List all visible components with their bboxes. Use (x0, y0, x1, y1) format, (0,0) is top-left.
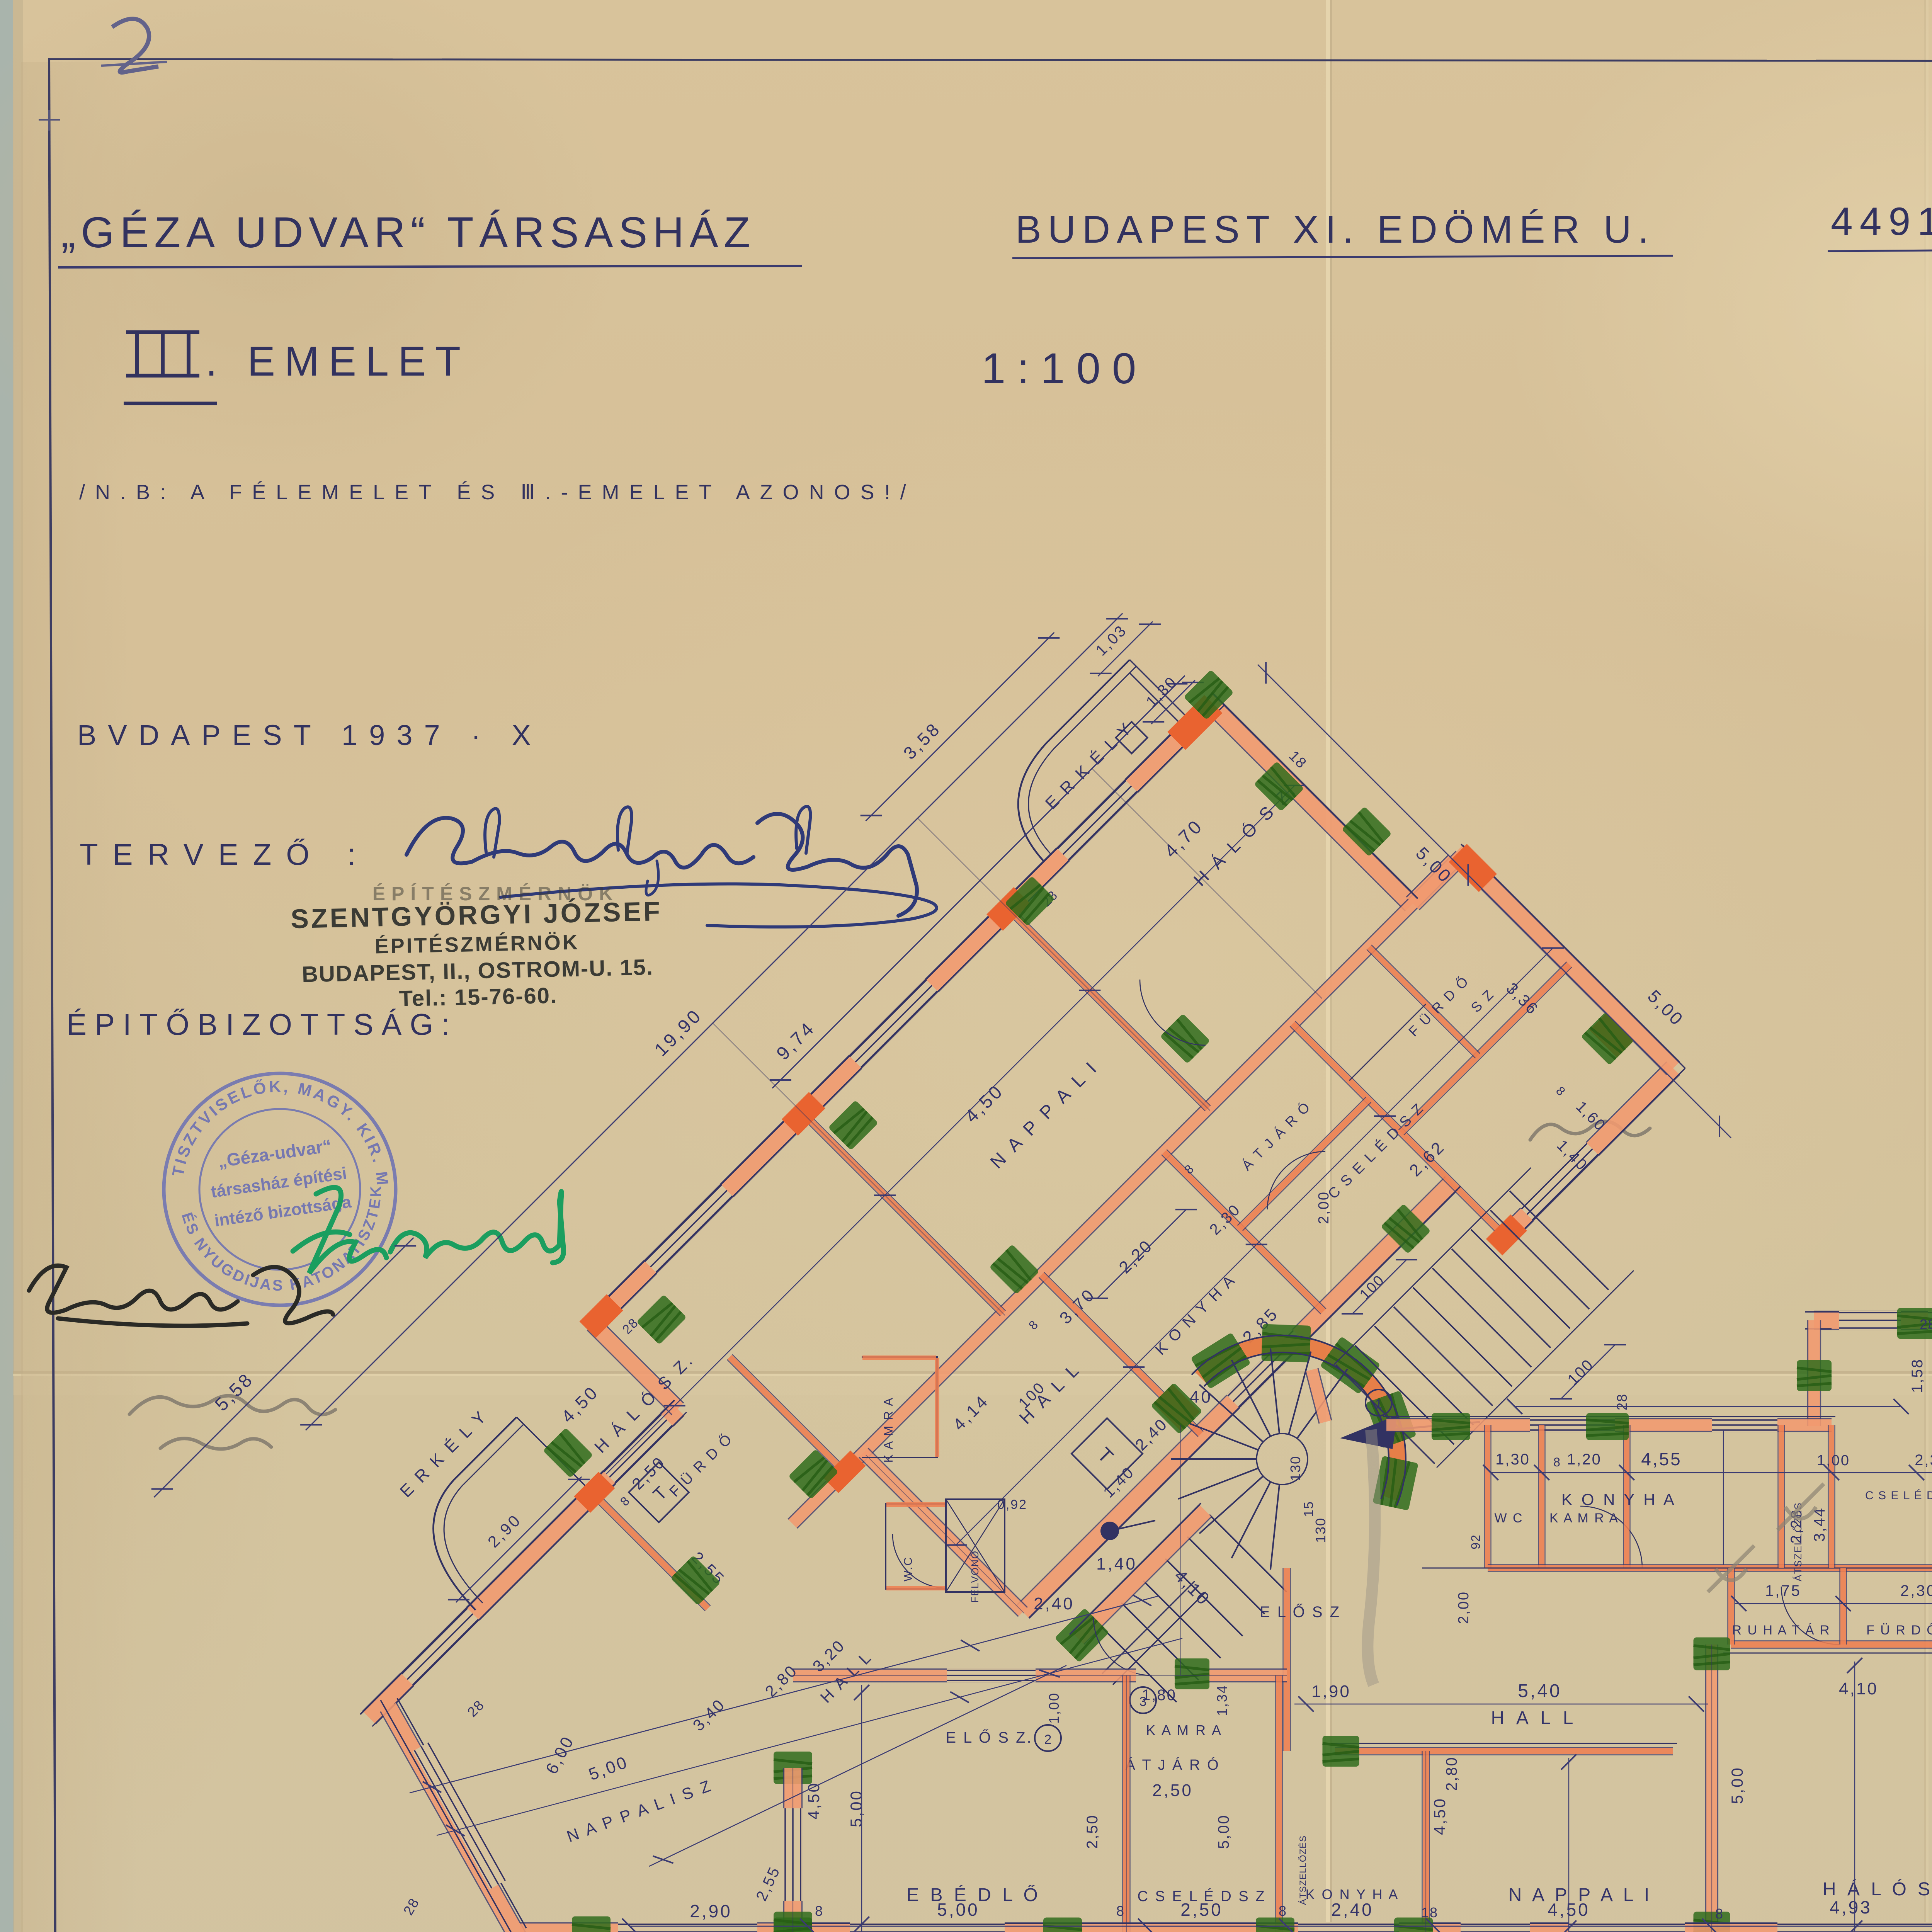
svg-text:4,93: 4,93 (1830, 1897, 1872, 1917)
svg-text:1,00: 1,00 (1817, 1452, 1850, 1469)
svg-text:2,50: 2,50 (1084, 1814, 1101, 1849)
svg-text:ÉPITŐBIZOTTSÁG:: ÉPITŐBIZOTTSÁG: (66, 1007, 458, 1041)
svg-text:F Ü R D Ő S Z: F Ü R D Ő S Z (1866, 1623, 1932, 1638)
svg-text:1,58: 1,58 (1909, 1358, 1926, 1393)
svg-text:FELVONÓ: FELVONÓ (969, 1550, 981, 1603)
svg-text:15: 15 (1301, 1501, 1316, 1517)
svg-text:8: 8 (1553, 1455, 1561, 1469)
svg-text:K A M R A: K A M R A (881, 1396, 895, 1463)
svg-text:2,50: 2,50 (1180, 1900, 1223, 1920)
svg-text:1,34: 1,34 (1214, 1684, 1230, 1716)
svg-text:„GÉZA UDVAR“ TÁRSASHÁZ: „GÉZA UDVAR“ TÁRSASHÁZ (61, 208, 755, 257)
svg-text:130: 130 (1313, 1517, 1328, 1543)
svg-text:5,40: 5,40 (1518, 1681, 1561, 1701)
svg-text:1,30: 1,30 (1495, 1451, 1530, 1468)
svg-text:4,10: 4,10 (1839, 1679, 1878, 1698)
svg-text:1,20: 1,20 (1567, 1451, 1602, 1468)
svg-text:92: 92 (1469, 1534, 1483, 1549)
svg-text:E L Ő S Z.: E L Ő S Z. (946, 1729, 1032, 1746)
svg-text:5,00: 5,00 (847, 1789, 865, 1827)
svg-text:8: 8 (1279, 1903, 1287, 1919)
svg-text:BVDAPEST 1937 · X: BVDAPEST 1937 · X (77, 719, 543, 751)
svg-text:K O N Y H A: K O N Y H A (1561, 1490, 1677, 1509)
svg-text:ÁTSZELLŐZÉS: ÁTSZELLŐZÉS (1298, 1835, 1308, 1905)
svg-text:8: 8 (1715, 1906, 1724, 1922)
svg-text:R U H A T Á R: R U H A T Á R (1732, 1623, 1830, 1638)
svg-text:1,90: 1,90 (1311, 1682, 1351, 1701)
svg-text:Á T J Á R Ó: Á T J Á R Ó (1125, 1757, 1220, 1773)
svg-text:4,55: 4,55 (1641, 1449, 1682, 1469)
svg-text:2,00: 2,00 (1456, 1591, 1472, 1624)
svg-text:W.C: W.C (902, 1556, 915, 1582)
svg-text:1,75: 1,75 (1765, 1582, 1801, 1599)
svg-text:2,30: 2,30 (1900, 1582, 1932, 1599)
svg-text:K A M R A: K A M R A (1146, 1722, 1223, 1738)
svg-text:2,40: 2,40 (1034, 1594, 1075, 1613)
svg-text:8: 8 (815, 1903, 823, 1919)
svg-text:4,50: 4,50 (1430, 1797, 1449, 1835)
svg-text:1,80: 1,80 (1142, 1687, 1177, 1704)
svg-text:5,00: 5,00 (1728, 1766, 1746, 1804)
svg-text:H A L L: H A L L (1491, 1708, 1577, 1728)
svg-text:2,80: 2,80 (1443, 1756, 1460, 1791)
svg-text:TERVEZŐ :: TERVEZŐ : (80, 837, 370, 871)
svg-text:2,90: 2,90 (690, 1901, 732, 1921)
svg-text:18: 18 (1421, 1905, 1438, 1920)
svg-text:BUDAPEST XI. EDÖMÉR U.: BUDAPEST XI. EDÖMÉR U. (1015, 208, 1655, 251)
svg-text:130: 130 (1287, 1456, 1303, 1481)
svg-text:2,00: 2,00 (1316, 1191, 1332, 1224)
svg-text:2: 2 (1044, 1732, 1052, 1747)
svg-text:ÉPITÉSZMÉRNÖK: ÉPITÉSZMÉRNÖK (374, 930, 580, 958)
svg-text:1,40: 1,40 (1096, 1554, 1137, 1573)
svg-text:4491/9 HRSZ.: 4491/9 HRSZ. (1831, 199, 1932, 243)
svg-text:5,00: 5,00 (1215, 1814, 1232, 1849)
svg-text:W C: W C (1494, 1511, 1523, 1526)
svg-text:28: 28 (1614, 1393, 1630, 1410)
svg-text:28: 28 (1920, 1316, 1932, 1332)
svg-text:0,92: 0,92 (997, 1497, 1027, 1512)
svg-text:1,00: 1,00 (1046, 1692, 1062, 1724)
svg-text:1: 1 (1375, 1397, 1383, 1412)
svg-text:2,40: 2,40 (1331, 1900, 1374, 1920)
svg-text:5,00: 5,00 (937, 1900, 980, 1920)
svg-text:K A M R A: K A M R A (1549, 1511, 1619, 1526)
svg-text:Tel.: 15-76-60.: Tel.: 15-76-60. (399, 983, 558, 1012)
svg-text:8: 8 (1116, 1903, 1125, 1919)
svg-text:2,30: 2,30 (1915, 1452, 1932, 1469)
svg-text:1:100: 1:100 (981, 344, 1148, 393)
svg-text:ÉPÍTÉSZMÉRNÖK: ÉPÍTÉSZMÉRNÖK (372, 883, 619, 905)
svg-text:H Á L Ó S Z.: H Á L Ó S Z. (1823, 1879, 1932, 1900)
svg-text:2,50: 2,50 (1152, 1781, 1193, 1800)
svg-text:E L Ő S Z: E L Ő S Z (1260, 1603, 1341, 1621)
svg-text:. EMELET: . EMELET (206, 338, 470, 384)
svg-text:/N.B: A FÉLEMELET ÉS Ⅲ.-EMELET: /N.B: A FÉLEMELET ÉS Ⅲ.-EMELET AZONOS!/ (79, 481, 916, 504)
svg-text:C S E L É D S Z.: C S E L É D S Z. (1865, 1489, 1932, 1502)
